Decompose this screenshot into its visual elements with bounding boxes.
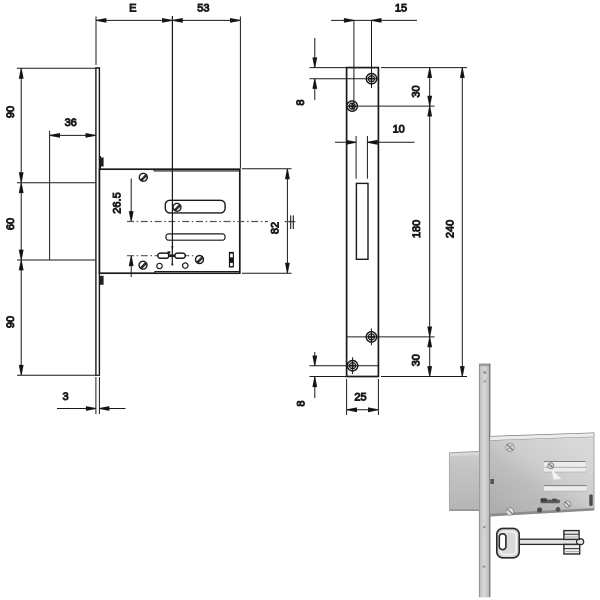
svg-text:8: 8 xyxy=(296,400,308,406)
svg-text:30: 30 xyxy=(411,354,423,366)
svg-text:3: 3 xyxy=(62,391,68,403)
svg-text:90: 90 xyxy=(5,316,17,328)
svg-text:60: 60 xyxy=(5,218,17,230)
svg-text:E: E xyxy=(129,2,136,14)
svg-text:180: 180 xyxy=(411,220,423,238)
svg-text:15: 15 xyxy=(395,2,407,14)
svg-text:10: 10 xyxy=(393,124,405,136)
svg-text:25: 25 xyxy=(354,391,366,403)
svg-text:82: 82 xyxy=(269,222,281,234)
svg-text:8: 8 xyxy=(295,99,307,105)
svg-text:53: 53 xyxy=(197,2,209,14)
svg-text:90: 90 xyxy=(5,106,17,118)
svg-text:36: 36 xyxy=(65,117,77,129)
svg-text:30: 30 xyxy=(411,85,423,97)
svg-text:240: 240 xyxy=(445,220,457,238)
svg-text:26.5: 26.5 xyxy=(112,192,124,213)
